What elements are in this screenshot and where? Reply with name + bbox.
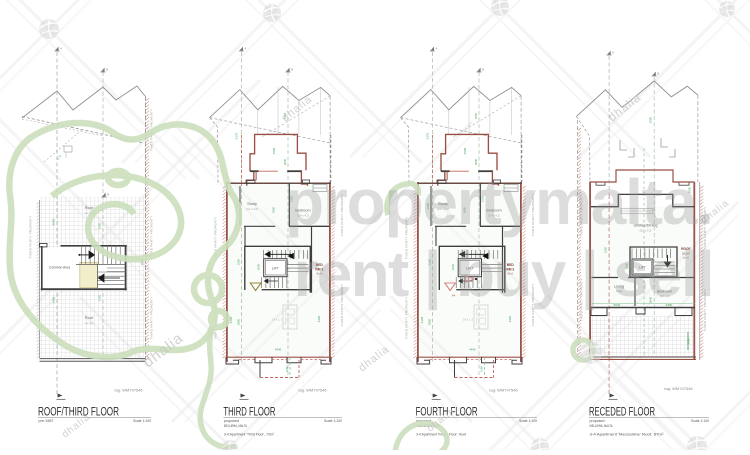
svg-text:THIRD PARTY PROPERTY: THIRD PARTY PROPERTY: [29, 216, 33, 259]
svg-text:2845: 2845: [474, 158, 478, 165]
svg-text:4420: 4420: [317, 315, 321, 322]
svg-text:1950: 1950: [474, 112, 478, 119]
svg-text:Scale 1:100: Scale 1:100: [133, 419, 151, 423]
svg-text:2590: 2590: [463, 147, 467, 154]
svg-text:4420: 4420: [508, 315, 512, 322]
svg-text:B: B: [106, 68, 108, 72]
svg-text:4445: 4445: [469, 348, 476, 352]
svg-text:proposed: proposed: [224, 419, 239, 423]
svg-text:A: A: [436, 47, 438, 51]
svg-text:THIRD FLOOR: THIRD FLOOR: [223, 407, 275, 419]
svg-text:Common Area: Common Area: [49, 266, 70, 270]
svg-text:5170: 5170: [425, 132, 429, 139]
svg-text:6195: 6195: [420, 316, 424, 323]
svg-text:B: B: [482, 68, 484, 72]
svg-text:Scale 1:100: Scale 1:100: [519, 419, 537, 423]
svg-text:(xx m²): (xx m²): [85, 321, 94, 325]
svg-text:A: A: [245, 47, 247, 51]
svg-text:[ 9 x 1. ]: [ 9 x 1. ]: [272, 318, 282, 322]
svg-text:5170: 5170: [234, 132, 238, 139]
svg-text:2996: 2996: [236, 318, 240, 325]
svg-text:[ 9 x 1. ]: [ 9 x 1. ]: [463, 318, 473, 322]
svg-text:B: B: [291, 68, 293, 72]
svg-text:tag: WM747546: tag: WM747546: [298, 388, 327, 393]
svg-text:(3.1 x 4.2): (3.1 x 4.2): [246, 207, 258, 211]
svg-text:2845: 2845: [283, 158, 287, 165]
svg-text:THIRD PARTY PROPERTY: THIRD PARTY PROPERTY: [150, 216, 154, 259]
svg-text:tag: WM747546: tag: WM747546: [114, 388, 143, 393]
svg-text:Scale 1:100: Scale 1:100: [691, 419, 709, 423]
svg-text:B: B: [107, 193, 109, 197]
svg-text:propertymalta.: propertymalta.: [285, 166, 713, 238]
svg-text:3-4 Apartment 'Mezzanine' Roof: 3-4 Apartment 'Mezzanine' Roof, 87m²: [590, 433, 665, 437]
svg-text:tag: WM747546: tag: WM747546: [489, 388, 518, 393]
svg-text:RECEDED FLOOR: RECEDED FLOOR: [589, 407, 655, 419]
svg-text:3430: 3430: [271, 206, 275, 213]
svg-text:Roof: Roof: [85, 205, 94, 210]
svg-text:3000: 3000: [98, 222, 102, 229]
svg-text:1060: 1060: [285, 366, 289, 372]
svg-text:3150: 3150: [236, 258, 240, 265]
svg-text:1060: 1060: [480, 366, 484, 372]
svg-text:Scale 1:100: Scale 1:100: [324, 419, 342, 423]
svg-text:Study: Study: [247, 202, 257, 206]
svg-text:3-4 Apartment 'Fourth Floor',: 3-4 Apartment 'Fourth Floor', Roof: [416, 433, 466, 437]
svg-text:3150: 3150: [98, 294, 102, 301]
svg-text:A: A: [60, 47, 62, 51]
svg-text:THIRD PARTY PROPERTY: THIRD PARTY PROPERTY: [150, 297, 154, 340]
svg-text:2590: 2590: [272, 147, 276, 154]
svg-text:A: A: [612, 51, 614, 55]
svg-text:rent | buy | sell: rent | buy | sell: [294, 238, 713, 311]
svg-text:2996: 2996: [427, 318, 431, 325]
svg-text:proposed: proposed: [590, 419, 605, 423]
svg-text:MELLIEĦA, MALTA: MELLIEĦA, MALTA: [224, 424, 247, 428]
svg-text:2600: 2600: [257, 263, 261, 270]
svg-text:B: B: [657, 72, 659, 76]
svg-text:LIFT: LIFT: [272, 267, 279, 271]
svg-text:tag: WM747546: tag: WM747546: [664, 386, 693, 391]
svg-text:4000: 4000: [52, 218, 56, 225]
svg-text:3-4 Apartment 'Third Floor', 7: 3-4 Apartment 'Third Floor', 73m²: [224, 433, 275, 437]
svg-text:MELLIEĦA, MALTA: MELLIEĦA, MALTA: [590, 424, 613, 428]
svg-text:2996: 2996: [52, 296, 56, 303]
svg-text:2590: 2590: [649, 116, 653, 123]
svg-text:Roof: Roof: [85, 315, 94, 320]
svg-text:pre-1967: pre-1967: [39, 419, 54, 423]
svg-text:4445: 4445: [275, 348, 282, 352]
